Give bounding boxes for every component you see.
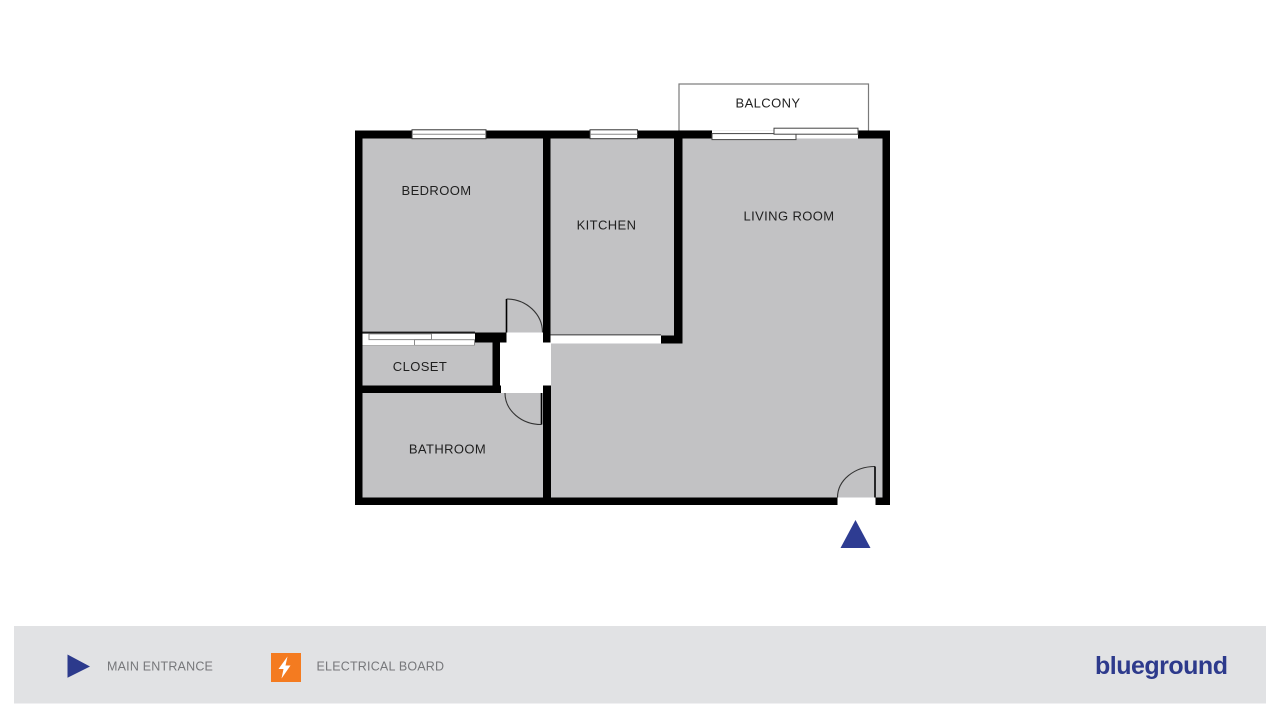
svg-text:ELECTRICAL BOARD: ELECTRICAL BOARD (317, 660, 445, 674)
svg-text:blueground: blueground (1095, 652, 1227, 680)
svg-text:BATHROOM: BATHROOM (409, 442, 486, 457)
svg-text:BALCONY: BALCONY (736, 96, 801, 111)
svg-text:CLOSET: CLOSET (393, 359, 447, 374)
svg-text:BEDROOM: BEDROOM (402, 183, 472, 198)
svg-text:KITCHEN: KITCHEN (577, 218, 637, 233)
svg-text:MAIN ENTRANCE: MAIN ENTRANCE (107, 660, 213, 674)
svg-text:LIVING ROOM: LIVING ROOM (743, 209, 834, 224)
